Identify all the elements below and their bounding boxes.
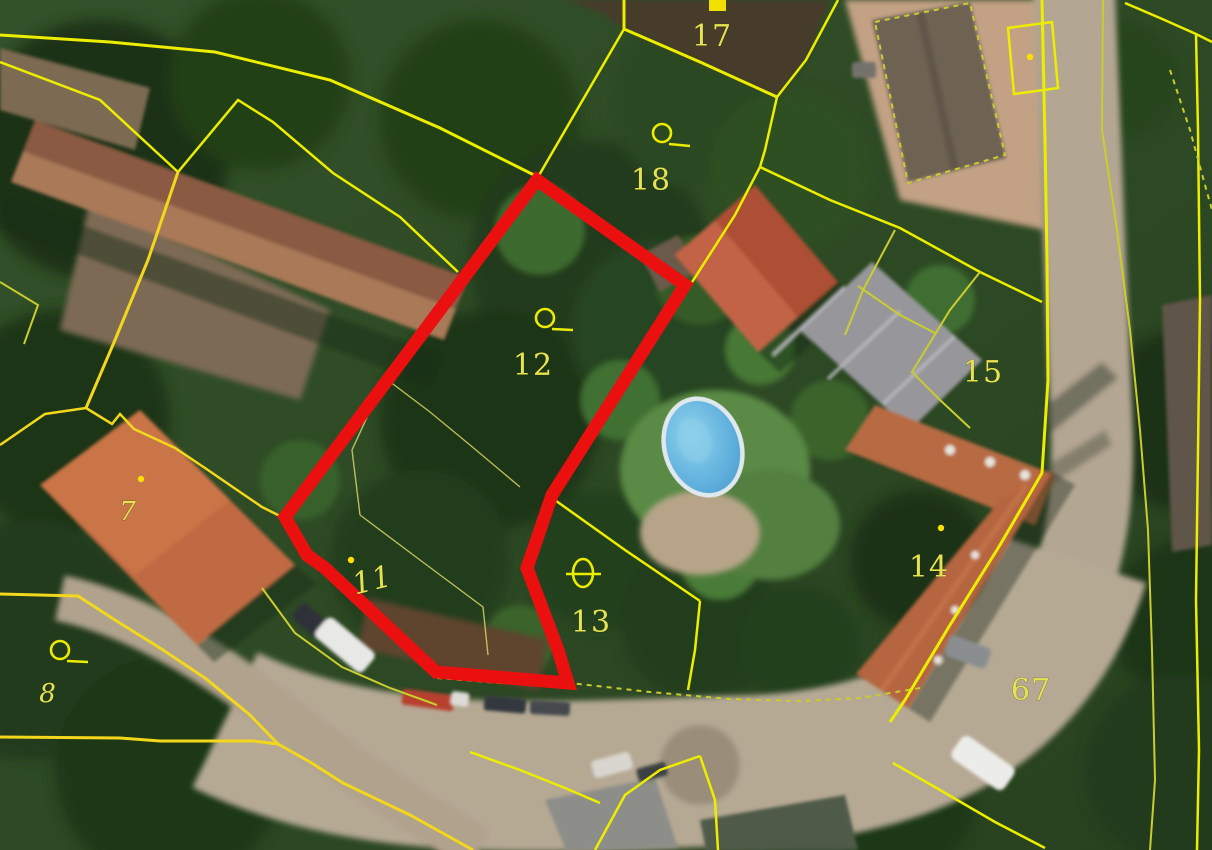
grey-car [852, 62, 876, 78]
parcel-point [938, 525, 944, 531]
parcel-label-18: 18 [631, 163, 671, 198]
pool-deck [640, 491, 760, 575]
parcel-label-8: 8 [39, 679, 57, 709]
parcel-point [1027, 54, 1033, 60]
parcel-label-17: 17 [692, 19, 732, 54]
orthophoto-layer [0, 0, 1212, 850]
parcel-label-13: 13 [571, 605, 611, 640]
parcel-label-7: 7 [119, 497, 137, 527]
parcel-label-12: 12 [513, 348, 553, 383]
dark-car [530, 700, 571, 716]
parcel-point [348, 557, 354, 563]
parcel-point [138, 476, 144, 482]
parcel-label-67: 67 [1011, 673, 1051, 708]
map-viewport[interactable]: 17 18 12 15 7 11 13 14 8 67 [0, 0, 1212, 850]
road-north [1060, 0, 1092, 615]
boundary-marker-square [709, 0, 726, 11]
truck-cab [450, 691, 470, 707]
parcel-label-15: 15 [963, 355, 1003, 390]
parcel-label-14: 14 [909, 550, 949, 585]
map-canvas[interactable]: 17 18 12 15 7 11 13 14 8 67 [0, 0, 1212, 850]
